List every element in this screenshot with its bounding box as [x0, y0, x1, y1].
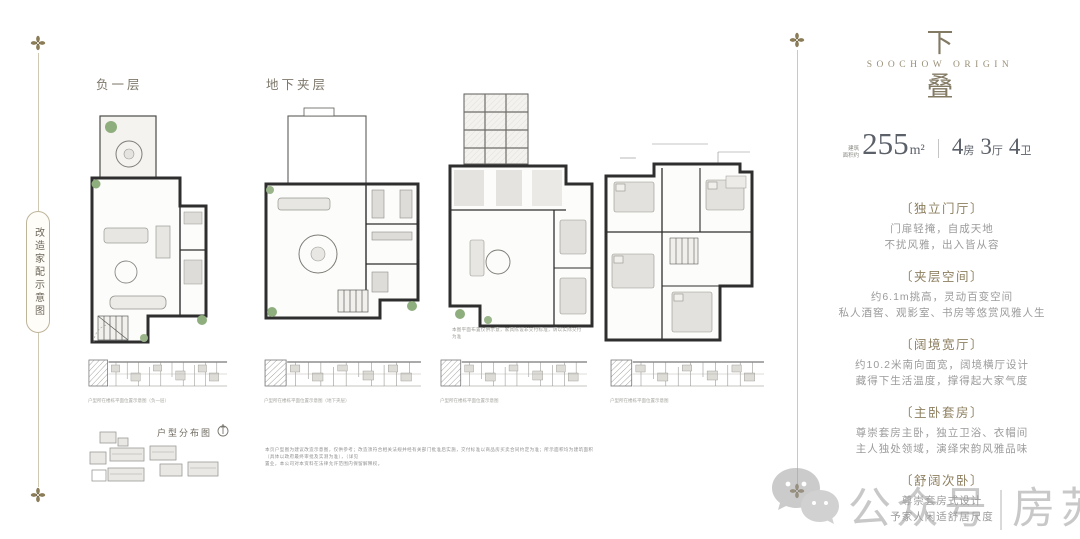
baths-count: 4 [1009, 134, 1021, 160]
side-tag: 改造家配示意图 [26, 211, 50, 333]
stairs [338, 290, 368, 312]
stairs [670, 238, 698, 264]
disclaimer: 本页户型图为建议改造示意图，仅供参考；改造须符合相关法规并经有关部门批准后实施，… [265, 446, 600, 467]
feature-title: 〔独立门厅〕 [806, 198, 1078, 217]
floorplan-mezzanine [260, 104, 425, 324]
spec-divider: | [937, 137, 940, 160]
watermark: 公众号|房苏州 [770, 462, 1080, 532]
building-strip [440, 355, 588, 393]
plan-label-b1: 负一层 [96, 74, 143, 93]
poster-canvas: 改造家配示意图 负一层 地下夹层 [0, 0, 1080, 539]
floorplan-level-1 [446, 92, 596, 332]
feature-mezzanine-space: 〔夹层空间〕 约6.1m挑高，灵动百变空间 私人酒窖、观影室、书房等悠赏风雅人生 [806, 266, 1078, 321]
halls-count: 3 [980, 134, 992, 160]
floorplan-level-2 [600, 136, 768, 348]
panel-divider-line [797, 50, 798, 486]
feature-title: 〔主卧套房〕 [806, 402, 1078, 421]
divider-flower-icon [789, 32, 805, 48]
strip-caption: 户型所在楼栋平面位置示意图 [610, 398, 669, 404]
spec-row: 建筑 面积约 255 m² | 4 房 3 厅 4 卫 [808, 126, 1072, 163]
strip-caption: 户型所在楼栋平面位置示意图（负一层） [88, 398, 169, 404]
feature-line: 主人独处领域，演绎宋韵风雅品味 [806, 442, 1078, 458]
feature-master-suite: 〔主卧套房〕 尊崇套房主卧，独立卫浴、衣帽间 主人独处领域，演绎宋韵风雅品味 [806, 402, 1078, 457]
corner-flower-icon [30, 35, 46, 51]
feature-entry-foyer: 〔独立门厅〕 门扉轻掩，自成天地 不扰风雅，出入皆从容 [806, 198, 1078, 253]
side-tag-label: 改造家配示意图 [31, 227, 46, 318]
building-strip [610, 355, 765, 393]
disclaimer-line: 本页户型图为建议改造示意图，仅供参考；改造须符合相关法规并经有关部门批准后实施，… [265, 446, 600, 460]
disclaimer-line: 置业，本公司对本资料在法律允许范围内保留解释权。 [265, 460, 600, 467]
sitemap-buildings [88, 430, 253, 500]
feature-line: 私人酒窖、观影室、书房等悠赏风雅人生 [806, 306, 1078, 322]
watermark-prefix: 公众号 [848, 485, 992, 533]
left-frame-line-bottom [38, 333, 39, 487]
plan3-note: 本图平面布置仅供示意，家具陈设非交付标准，请以实际交付为准 [452, 327, 582, 340]
feature-line: 约6.1m挑高，灵动百变空间 [806, 290, 1078, 306]
corner-flower-icon [30, 487, 46, 503]
area-prefix-line: 面积约 [843, 153, 860, 160]
area-value: 255 [862, 126, 909, 162]
brand-block: 下 SOOCHOW ORIGIN 叠 [810, 28, 1070, 102]
feature-line: 不扰风雅，出入皆从容 [806, 238, 1078, 254]
plan-label-mezzanine: 地下夹层 [266, 74, 328, 93]
feature-line: 藏得下生活温度，撑得起大家气度 [806, 374, 1078, 390]
brand-subtitle: SOOCHOW ORIGIN [810, 60, 1070, 70]
rooms-label: 房 [963, 142, 974, 158]
rooms [454, 170, 562, 206]
feature-title: 〔阔境宽厅〕 [806, 334, 1078, 353]
baths-label: 卫 [1020, 142, 1031, 158]
stairs [98, 316, 128, 340]
feature-line: 门扉轻掩，自成天地 [806, 222, 1078, 238]
building-strip [88, 355, 228, 393]
area-prefix: 建筑 面积约 [843, 146, 860, 159]
wechat-icon [770, 466, 842, 528]
double-height-void [288, 108, 366, 184]
building-strip [264, 355, 422, 393]
terrace [100, 116, 156, 178]
brand-char-bottom: 叠 [810, 72, 1070, 102]
strip-caption: 户型所在楼栋平面位置示意图 [440, 398, 499, 404]
floorplan-basement-1 [84, 110, 219, 350]
area-unit: m² [910, 143, 925, 159]
watermark-text: 公众号|房苏州 [848, 474, 1080, 536]
feature-wide-hall: 〔阔境宽厅〕 约10.2米南向面宽，阔境横厅设计 藏得下生活温度，撑得起大家气度 [806, 334, 1078, 389]
pergola-grid [464, 94, 528, 164]
feature-line: 尊崇套房主卧，独立卫浴、衣帽间 [806, 426, 1078, 442]
feature-title: 〔夹层空间〕 [806, 266, 1078, 285]
left-frame-line-top [38, 53, 39, 211]
feature-line: 约10.2米南向面宽，阔境横厅设计 [806, 358, 1078, 374]
bath-fixture [726, 176, 746, 188]
watermark-divider: | [998, 483, 1005, 532]
watermark-name: 房苏州 [1012, 485, 1080, 533]
brand-char-top: 下 [810, 28, 1070, 58]
strip-caption: 户型所在楼栋平面位置示意图（地下夹层） [264, 398, 350, 404]
halls-label: 厅 [992, 142, 1003, 158]
rooms-count: 4 [952, 134, 964, 160]
